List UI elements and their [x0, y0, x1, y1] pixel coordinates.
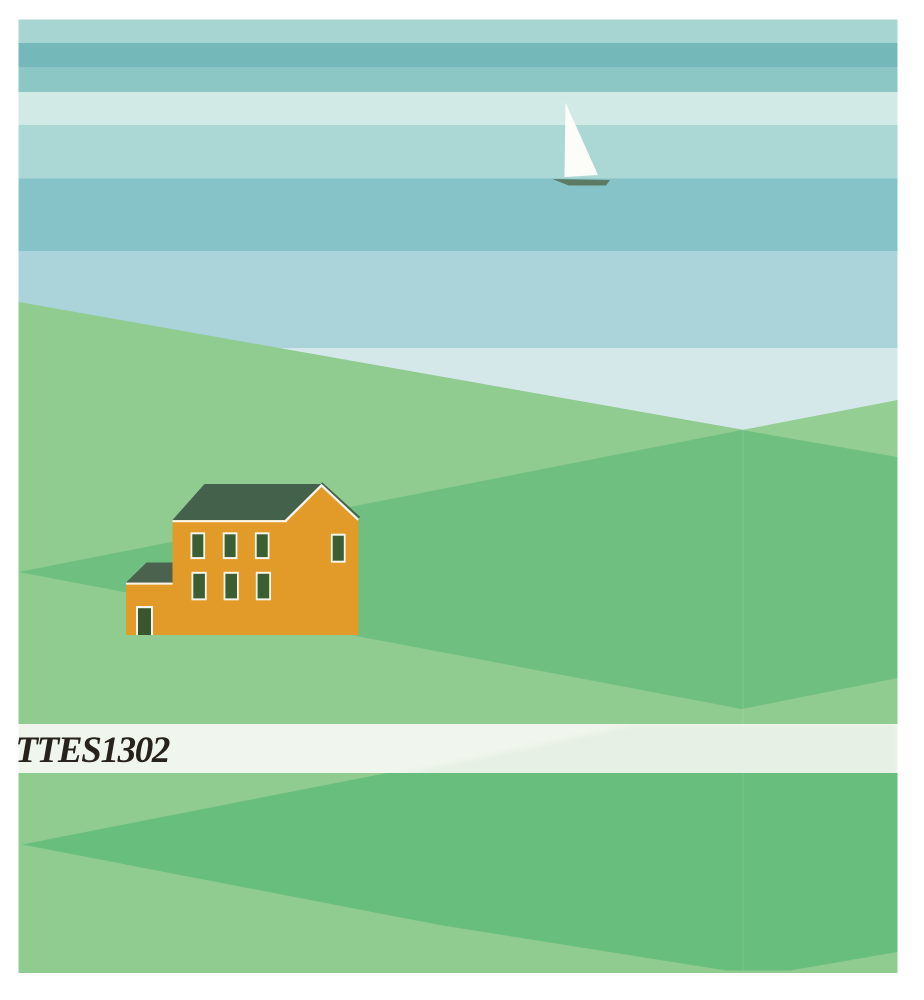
- svg-text:TTES1302: TTES1302: [15, 730, 170, 771]
